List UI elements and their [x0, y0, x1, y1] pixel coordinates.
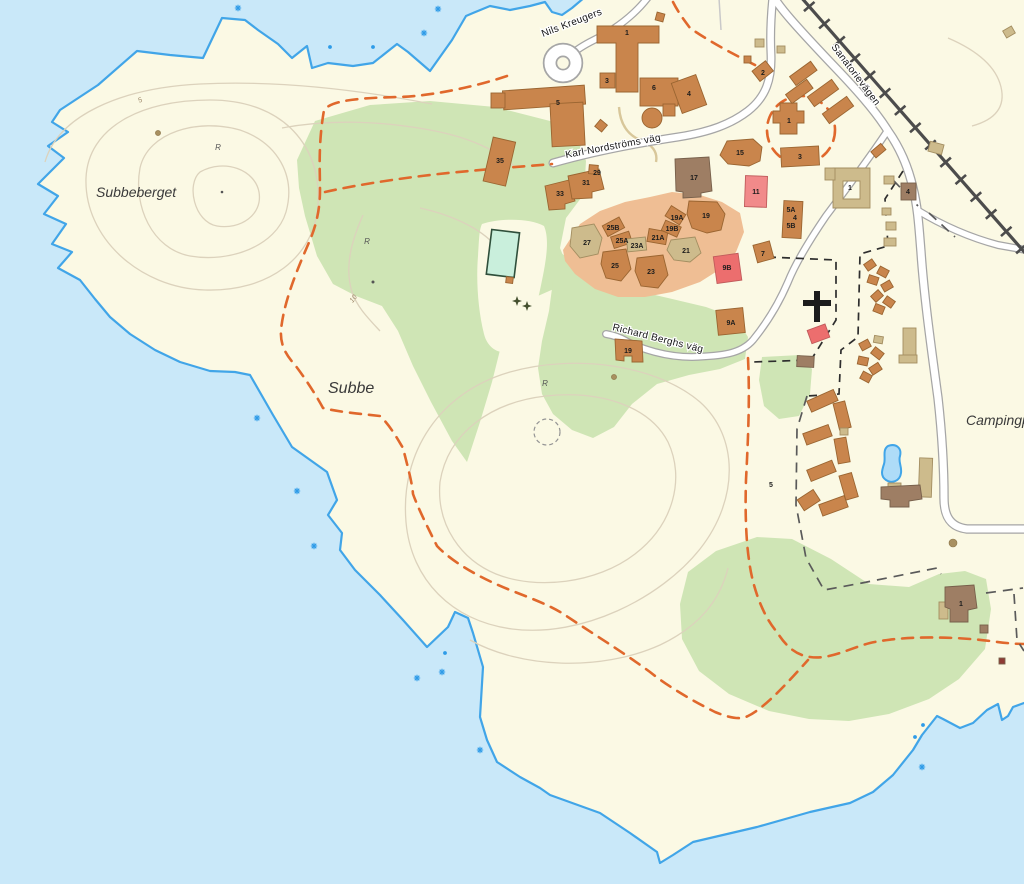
building-number-label: 27	[583, 240, 591, 247]
peak-dot	[221, 191, 224, 194]
building-number-label: 25	[611, 263, 619, 270]
building-number-label: 33	[556, 191, 564, 198]
cairn-mark: R	[215, 143, 221, 152]
place-name-label: Campingp	[966, 412, 1024, 428]
pool-hut	[506, 277, 514, 284]
rock-dot-icon	[371, 45, 375, 49]
building-number-label: 11	[752, 189, 760, 196]
building-number-label: 25A	[616, 238, 629, 245]
building-number-label: 5B	[787, 223, 796, 230]
building-number-label: 4	[793, 215, 797, 222]
building-number-label: 2	[761, 70, 765, 77]
rock-dot-icon	[913, 735, 917, 739]
building-number-label: 19	[624, 348, 632, 355]
building-number-label: 19	[702, 213, 710, 220]
place-name-label: Subbe	[328, 380, 374, 397]
building-number-label: 4	[906, 189, 910, 196]
building-number-label: 6	[652, 85, 656, 92]
building-number-label: 5	[556, 100, 560, 107]
building-number-label: 31	[582, 180, 590, 187]
peak-dot	[372, 281, 375, 284]
swimming-pool	[486, 229, 519, 277]
terrain-dot	[949, 539, 957, 547]
map-canvas[interactable]: 16453353331291715111322725B25A23A21A19A1…	[0, 0, 1024, 884]
building-number-label: 29	[593, 170, 601, 177]
rock-dot-icon	[921, 723, 925, 727]
building-number-label: 21	[682, 248, 690, 255]
cairn-mark: R	[542, 379, 548, 388]
building-number-label: 1	[787, 118, 791, 125]
terrain-dot	[155, 130, 160, 135]
building-number-label: 1	[959, 601, 963, 608]
building-number-label: 4	[687, 91, 691, 98]
building-number-label: 9A	[727, 320, 736, 327]
place-name-label: Subbeberget	[96, 184, 177, 200]
cairn-mark: R	[364, 237, 370, 246]
building-number-label: 9B	[723, 265, 732, 272]
rock-awash-icon	[435, 6, 441, 12]
building-number-label: 5	[769, 482, 773, 489]
building-number-label: 17	[690, 175, 698, 182]
building-number-label: 3	[605, 78, 609, 85]
terrain-dot	[611, 374, 616, 379]
rock-awash-icon	[235, 5, 241, 11]
building-number-label: 21A	[652, 235, 665, 242]
rock-awash-icon	[414, 675, 420, 681]
building-number-label: 7	[761, 251, 765, 258]
building-number-label: 1	[848, 185, 852, 192]
building-number-label: 25B	[607, 225, 620, 232]
rock-awash-icon	[294, 488, 300, 494]
rock-awash-icon	[477, 747, 483, 753]
rock-dot-icon	[328, 45, 332, 49]
building-number-label: 1	[625, 30, 629, 37]
building-number-label: 19B	[666, 226, 679, 233]
rock-dot-icon	[443, 651, 447, 655]
building-number-label: 23A	[631, 243, 644, 250]
pond	[882, 445, 901, 482]
building-number-label: 5A	[787, 207, 796, 214]
rock-awash-icon	[439, 669, 445, 675]
rock-awash-icon	[919, 764, 925, 770]
building-number-label: 15	[736, 150, 744, 157]
building-number-label: 3	[798, 154, 802, 161]
building-number-label: 19A	[671, 215, 684, 222]
rock-awash-icon	[254, 415, 260, 421]
building-number-label: 23	[647, 269, 655, 276]
building-number-label: 35	[496, 158, 504, 165]
rock-awash-icon	[421, 30, 427, 36]
rock-awash-icon	[311, 543, 317, 549]
